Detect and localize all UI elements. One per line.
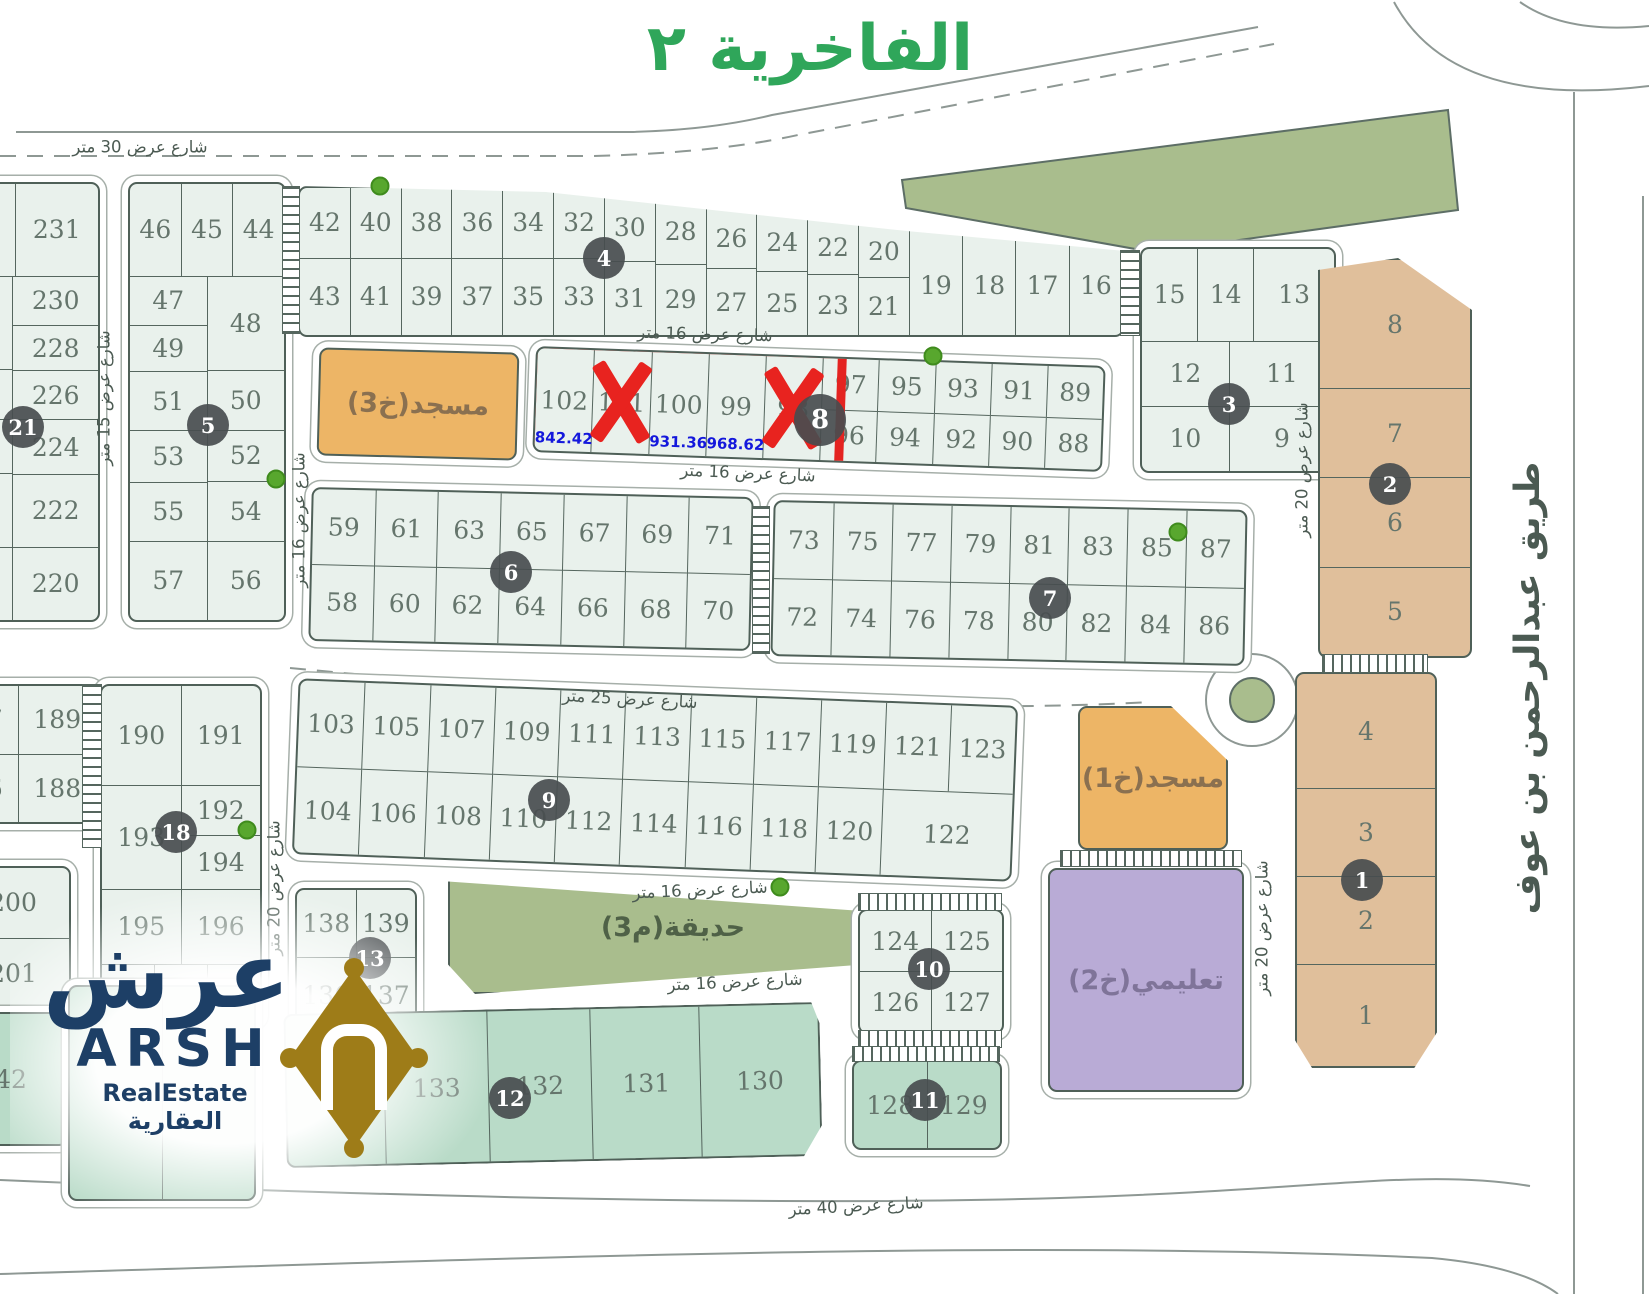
plot-232: 232 <box>0 184 15 276</box>
plot-120: 120 <box>816 786 884 875</box>
plot-95: 95 <box>878 360 935 412</box>
street-label: شارع عرض 20 متر <box>1253 860 1272 995</box>
plot-86: 86 <box>1184 586 1243 664</box>
logo-diamond-icon <box>290 968 418 1148</box>
plot-63: 63 <box>437 492 500 568</box>
plot-84: 84 <box>1126 585 1185 663</box>
plot-number: 99 <box>720 393 753 419</box>
plot-number: 112 <box>564 807 613 834</box>
plot-62: 62 <box>436 566 499 643</box>
facility-label: مسجد(خ3) <box>347 387 490 422</box>
plot-number: 64 <box>514 594 546 620</box>
plot-number: 52 <box>230 443 262 468</box>
plot-number: 97 <box>834 371 867 397</box>
block-badge-12: 12 <box>489 1077 531 1119</box>
plot-number: 31 <box>614 286 646 311</box>
plot-number: 36 <box>461 210 493 235</box>
plot-122: 122 <box>881 788 1013 879</box>
plot-221: 221 <box>0 547 12 620</box>
plot-number: 109 <box>502 718 551 745</box>
pedestrian-path-hatch <box>752 506 770 654</box>
plot-number: 116 <box>695 812 744 839</box>
plot-number: 34 <box>512 210 544 235</box>
plot-number: 188 <box>33 776 81 801</box>
plot-number: 11 <box>1266 361 1298 386</box>
plot-number: 12 <box>1170 361 1202 386</box>
plot-number: 22 <box>817 235 849 260</box>
facility-label: حديقة(م3) <box>601 912 745 943</box>
plot-117: 117 <box>754 698 822 786</box>
plot-60: 60 <box>373 565 436 642</box>
plot-number: 46 <box>139 217 171 242</box>
block-badge-3: 3 <box>1208 383 1250 425</box>
plot-number: 81 <box>1023 533 1055 559</box>
pedestrian-path-hatch <box>282 186 300 334</box>
plot-116: 116 <box>685 781 753 870</box>
plot-42: 42 <box>300 188 350 258</box>
utility-marker-dot <box>267 470 286 489</box>
plot-number: 17 <box>1027 273 1059 298</box>
plot-number: 57 <box>152 568 184 593</box>
plot-83: 83 <box>1068 508 1127 585</box>
plot-130: 130 <box>699 1004 820 1157</box>
plot-number: 26 <box>716 226 748 251</box>
plot-191: 191 <box>182 686 261 785</box>
plot-number: 100 <box>654 391 703 418</box>
plot-87: 87 <box>1186 511 1245 588</box>
plot-number: 37 <box>461 284 493 309</box>
block-badge-2: 2 <box>1369 463 1411 505</box>
street-label: شارع عرض 30 متر <box>72 138 207 157</box>
plot-number: 42 <box>309 210 341 235</box>
plot-number: 58 <box>326 590 358 616</box>
plot-36: 36 <box>452 188 502 258</box>
plot-88: 88 <box>1045 416 1102 469</box>
plot-number: 122 <box>922 821 971 848</box>
plot-number: 21 <box>868 294 900 319</box>
plot-100: 100931.36 <box>649 352 709 456</box>
plot-105: 105 <box>363 683 431 771</box>
plot-number: 187 <box>0 707 3 732</box>
plot-73: 73 <box>774 502 833 579</box>
plot-number: 1 <box>1358 1003 1374 1028</box>
plot-number: 44 <box>243 217 275 242</box>
pedestrian-path-hatch <box>1322 654 1428 673</box>
plot-number: 94 <box>889 425 922 451</box>
plot-229: 229 <box>0 277 12 370</box>
plot-187: 187 <box>0 686 18 754</box>
plot-44: 44 <box>233 184 284 276</box>
plot-number: 230 <box>32 288 80 313</box>
plot-number: 54 <box>230 499 262 524</box>
plot-89: 89 <box>1047 366 1104 418</box>
plot-61: 61 <box>375 490 438 566</box>
plot-70: 70 <box>687 572 750 649</box>
plot-109: 109 <box>493 688 561 776</box>
plot-number: 63 <box>453 517 485 543</box>
plot-54: 54 <box>208 481 285 540</box>
plot-81: 81 <box>1010 507 1069 584</box>
diamond-dot-icon <box>344 958 364 978</box>
plot-14: 14 <box>1198 249 1253 341</box>
plot-number: 72 <box>786 604 818 630</box>
logo-latin-wordmark: ARSH <box>60 1022 290 1077</box>
plot-number: 194 <box>197 850 245 875</box>
block-21: 232231229227225223221230228226224222220 <box>0 182 100 622</box>
plot-number: 92 <box>945 427 978 453</box>
plot-number: 73 <box>788 528 820 554</box>
plot-number: 104 <box>303 797 352 824</box>
plot-223: 223 <box>0 473 12 546</box>
plot-number: 3 <box>1358 820 1374 845</box>
plot-number: 82 <box>1080 610 1112 636</box>
plot-number: 18 <box>973 273 1005 298</box>
plot-41: 41 <box>351 258 401 335</box>
plot-number: 106 <box>369 800 418 827</box>
plot-5: 5 <box>1320 567 1470 656</box>
plot-number: 226 <box>32 383 80 408</box>
education-kh2: تعليمي(خ2) <box>1048 868 1244 1092</box>
plot-number: 125 <box>943 929 991 954</box>
arch-monogram-icon <box>321 1024 387 1110</box>
block-badge-1: 1 <box>1341 859 1383 901</box>
plot-number: 71 <box>704 523 736 549</box>
plot-number: 15 <box>1154 282 1186 307</box>
plot-37: 37 <box>452 258 502 335</box>
plot-number: 95 <box>890 373 923 399</box>
plot-58: 58 <box>310 564 373 641</box>
diamond-dot-icon <box>280 1048 300 1068</box>
plot-number: 43 <box>309 284 341 309</box>
plot-number: 47 <box>152 288 184 313</box>
plot-number: 32 <box>563 210 595 235</box>
plot-number: 50 <box>230 388 262 413</box>
plot-40: 40 <box>351 188 401 258</box>
plot-39: 39 <box>402 258 452 335</box>
plot-number: 61 <box>390 516 422 542</box>
plot-104: 104 <box>294 766 362 855</box>
page-title: الفاخرية ٢ <box>430 12 1190 86</box>
block-badge-8: 8 <box>794 394 846 446</box>
plot-number: 27 <box>716 290 748 315</box>
street-40m-edge-bottom <box>0 1250 1558 1294</box>
block-badge-4: 4 <box>583 237 625 279</box>
plot-number: 123 <box>958 736 1007 763</box>
plot-number: 91 <box>1003 377 1036 403</box>
plot-number: 114 <box>629 810 678 837</box>
plot-71: 71 <box>688 498 751 574</box>
plot-103: 103 <box>297 680 365 768</box>
plot-number: 129 <box>940 1093 988 1118</box>
plot-93: 93 <box>935 362 992 414</box>
street-label: طريق عبدالرحمن بن عوف <box>1508 462 1548 915</box>
plot-number: 93 <box>947 375 980 401</box>
plot-number: 66 <box>577 595 609 621</box>
plot-number: 41 <box>360 284 392 309</box>
street-label: شارع عرض 20 متر <box>1293 402 1312 537</box>
utility-marker-dot <box>238 821 257 840</box>
street-label: شارع عرض 16 متر <box>290 452 309 587</box>
plot-number: 65 <box>516 518 548 544</box>
plot-number: 74 <box>845 605 877 631</box>
plot-118: 118 <box>750 783 818 872</box>
plot-number: 107 <box>437 716 486 743</box>
plot-115: 115 <box>689 695 757 783</box>
diamond-dot-icon <box>408 1048 428 1068</box>
plot-number: 20 <box>868 239 900 264</box>
plot-number: 53 <box>152 444 184 469</box>
plot-number: 108 <box>434 802 483 829</box>
plot-99: 99968.62 <box>706 354 766 458</box>
plot-number: 231 <box>33 217 81 242</box>
plot-number: 84 <box>1139 611 1171 637</box>
green-strip <box>902 110 1458 252</box>
pedestrian-path-hatch <box>858 893 1002 911</box>
pedestrian-path-hatch <box>852 1046 1000 1062</box>
plot-number: 38 <box>411 210 443 235</box>
plot-number: 186 <box>0 776 3 801</box>
plot-46: 46 <box>130 184 181 276</box>
plot-number: 19 <box>920 273 952 298</box>
plot-57: 57 <box>130 541 207 620</box>
plot-number: 14 <box>1210 282 1242 307</box>
plot-38: 38 <box>402 188 452 258</box>
plot-number: 117 <box>763 728 812 755</box>
plot-number: 48 <box>230 311 262 336</box>
plot-78: 78 <box>949 581 1008 659</box>
plot-79: 79 <box>951 506 1010 583</box>
plot-67: 67 <box>563 495 626 571</box>
plot-number: 51 <box>152 389 184 414</box>
utility-marker-dot <box>771 878 790 897</box>
utility-marker-dot <box>371 177 390 196</box>
plot-number: 111 <box>568 721 617 748</box>
logo-tagline: RealEstate العقارية <box>60 1079 290 1135</box>
plot-number: 118 <box>760 815 809 842</box>
block-badge-7: 7 <box>1029 577 1071 619</box>
plot-number: 49 <box>152 336 184 361</box>
plot-number: 60 <box>389 591 421 617</box>
plot-107: 107 <box>428 685 496 773</box>
plot-21: 21 <box>859 277 909 335</box>
plot-number: 8 <box>1387 312 1403 337</box>
plot-48: 48 <box>208 277 285 371</box>
mosque-kh3: مسجد(خ3) <box>317 347 520 460</box>
plot-59: 59 <box>312 489 375 565</box>
plot-number: 79 <box>964 531 996 557</box>
plot-43: 43 <box>300 258 350 335</box>
plot-number: 62 <box>451 592 483 618</box>
plot-230: 230 <box>13 277 98 325</box>
block-badge-9: 9 <box>528 779 570 821</box>
plot-number: 13 <box>1278 282 1310 307</box>
plot-number: 69 <box>641 521 673 547</box>
plot-number: 130 <box>736 1067 784 1093</box>
plot-number: 29 <box>665 287 697 312</box>
plot-106: 106 <box>359 768 427 857</box>
plot-number: 4 <box>1358 719 1374 744</box>
plot-number: 222 <box>32 498 80 523</box>
plot-number: 101 <box>597 389 646 416</box>
plot-56: 56 <box>208 541 285 620</box>
plot-number: 77 <box>905 530 937 556</box>
plot-number: 124 <box>871 929 919 954</box>
plot-220: 220 <box>13 547 98 620</box>
plot-number: 67 <box>578 520 610 546</box>
plot-45: 45 <box>182 184 233 276</box>
block-badge-11: 11 <box>904 1079 946 1121</box>
plot-number: 127 <box>943 990 991 1015</box>
plot-number: 121 <box>893 733 942 760</box>
plot-number: 45 <box>191 217 223 242</box>
plot-186: 186 <box>0 754 18 823</box>
pedestrian-path-hatch <box>1120 250 1140 336</box>
plot-number: 191 <box>197 723 245 748</box>
plot-47: 47 <box>130 277 207 325</box>
plot-number: 9 <box>1274 426 1290 451</box>
block-badge-21: 21 <box>2 406 44 448</box>
utility-marker-dot <box>924 347 943 366</box>
plot-number: 90 <box>1001 429 1034 455</box>
plot-76: 76 <box>890 580 949 658</box>
plot-55: 55 <box>130 482 207 541</box>
arsh-logo: عرش ARSH RealEstate العقارية <box>40 920 460 1200</box>
plot-119: 119 <box>819 700 887 788</box>
plot-unlabeled: 121123 <box>884 703 1016 793</box>
plot-number: 102 <box>540 387 589 414</box>
plot-number: 28 <box>665 219 697 244</box>
plot-number: 68 <box>639 597 671 623</box>
plot-121: 121 <box>884 703 951 791</box>
utility-marker-dot <box>1169 523 1188 542</box>
plot-number: 89 <box>1059 379 1092 405</box>
plot-number: 23 <box>817 293 849 318</box>
plot-77: 77 <box>892 505 951 582</box>
plot-number: 35 <box>512 284 544 309</box>
pedestrian-path-hatch <box>82 684 102 848</box>
block-badge-10: 10 <box>908 948 950 990</box>
plot-number: 87 <box>1200 536 1232 562</box>
plot-number: 55 <box>152 499 184 524</box>
plot-number: 75 <box>846 529 878 555</box>
plot-number: 120 <box>825 817 874 844</box>
plot-number: 86 <box>1198 613 1230 639</box>
street-label: شارع عرض 15 متر <box>95 330 114 465</box>
plot-number: 70 <box>702 598 734 624</box>
plot-35: 35 <box>503 258 553 335</box>
plot-number: 85 <box>1141 535 1173 561</box>
plot-228: 228 <box>13 325 98 370</box>
plot-114: 114 <box>620 778 688 867</box>
plot-number: 103 <box>307 711 356 738</box>
plot-number: 83 <box>1082 534 1114 560</box>
plot-number: 25 <box>766 291 798 316</box>
plot-190: 190 <box>102 686 181 785</box>
block-badge-5: 5 <box>187 404 229 446</box>
plot-34: 34 <box>503 188 553 258</box>
street-label: شارع عرض 16 متر <box>637 323 773 346</box>
plot-area-value: 842.42 <box>535 428 592 448</box>
plot-74: 74 <box>831 579 890 657</box>
plot-92: 92 <box>933 413 990 466</box>
plot-number: 24 <box>766 230 798 255</box>
plot-number: 40 <box>360 210 392 235</box>
plot-91: 91 <box>991 364 1048 416</box>
block-badge-6: 6 <box>490 551 532 593</box>
plot-66: 66 <box>561 569 624 646</box>
plot-number: 56 <box>230 568 262 593</box>
plot-102: 102842.42 <box>534 348 594 452</box>
plot-number: 2 <box>1358 908 1374 933</box>
plot-number: 78 <box>963 608 995 634</box>
diamond-dot-icon <box>344 1138 364 1158</box>
plot-number: 131 <box>622 1070 670 1096</box>
plot-number: 113 <box>633 723 682 750</box>
plot-49: 49 <box>130 325 207 371</box>
logo-arabic-wordmark: عرش <box>60 930 290 1022</box>
block-2-tan: 8765 <box>1318 258 1472 658</box>
plot-69: 69 <box>626 496 689 572</box>
plot-85: 85 <box>1127 509 1186 586</box>
plot-number: 39 <box>411 284 443 309</box>
plot-number: 119 <box>828 731 877 758</box>
block-badge-18: 18 <box>155 811 197 853</box>
map-canvas: الفاخرية ٢ عرش ARSH RealEstate العقارية … <box>0 0 1649 1294</box>
plot-number: 76 <box>904 607 936 633</box>
plot-number: 6 <box>1387 510 1403 535</box>
plot-number: 126 <box>871 990 919 1015</box>
plot-number: 88 <box>1057 431 1090 457</box>
plot-131: 131 <box>591 1007 702 1159</box>
plot-4: 4 <box>1297 674 1435 788</box>
block-5: 4645444749515355574850525456 <box>128 182 286 622</box>
plot-72: 72 <box>772 578 831 656</box>
plot-number: 228 <box>32 336 80 361</box>
plot-101: 101 <box>592 350 652 454</box>
plot-108: 108 <box>424 771 492 860</box>
plot-123: 123 <box>949 705 1016 793</box>
plot-94: 94 <box>877 411 934 464</box>
roundabout-island <box>1230 678 1274 722</box>
plot-number: 192 <box>197 798 245 823</box>
plot-231: 231 <box>16 184 99 276</box>
plot-82: 82 <box>1067 584 1126 662</box>
facility-label: مسجد(خ1) <box>1082 763 1224 794</box>
plot-number: 115 <box>698 726 747 753</box>
plot-number: 189 <box>33 707 81 732</box>
plot-number: 59 <box>328 514 360 540</box>
plot-90: 90 <box>989 414 1046 467</box>
plot-number: 33 <box>563 284 595 309</box>
plot-number: 220 <box>32 571 80 596</box>
plot-number: 16 <box>1080 273 1112 298</box>
plot-1: 1 <box>1297 964 1435 1066</box>
plot-number: 10 <box>1170 426 1202 451</box>
plot-number: 5 <box>1387 599 1403 624</box>
plot-number: 105 <box>372 713 421 740</box>
plot-222: 222 <box>13 474 98 547</box>
plot-number: 7 <box>1387 421 1403 446</box>
plot-area-value: 931.36 <box>649 432 706 452</box>
plot-area-value: 968.62 <box>706 434 763 454</box>
pedestrian-path-hatch <box>1060 850 1242 867</box>
plot-number: 30 <box>614 215 646 240</box>
facility-label: تعليمي(خ2) <box>1068 965 1224 996</box>
plot-23: 23 <box>808 274 858 335</box>
plot-75: 75 <box>833 503 892 580</box>
plot-15: 15 <box>1142 249 1197 341</box>
plot-number: 190 <box>117 723 165 748</box>
